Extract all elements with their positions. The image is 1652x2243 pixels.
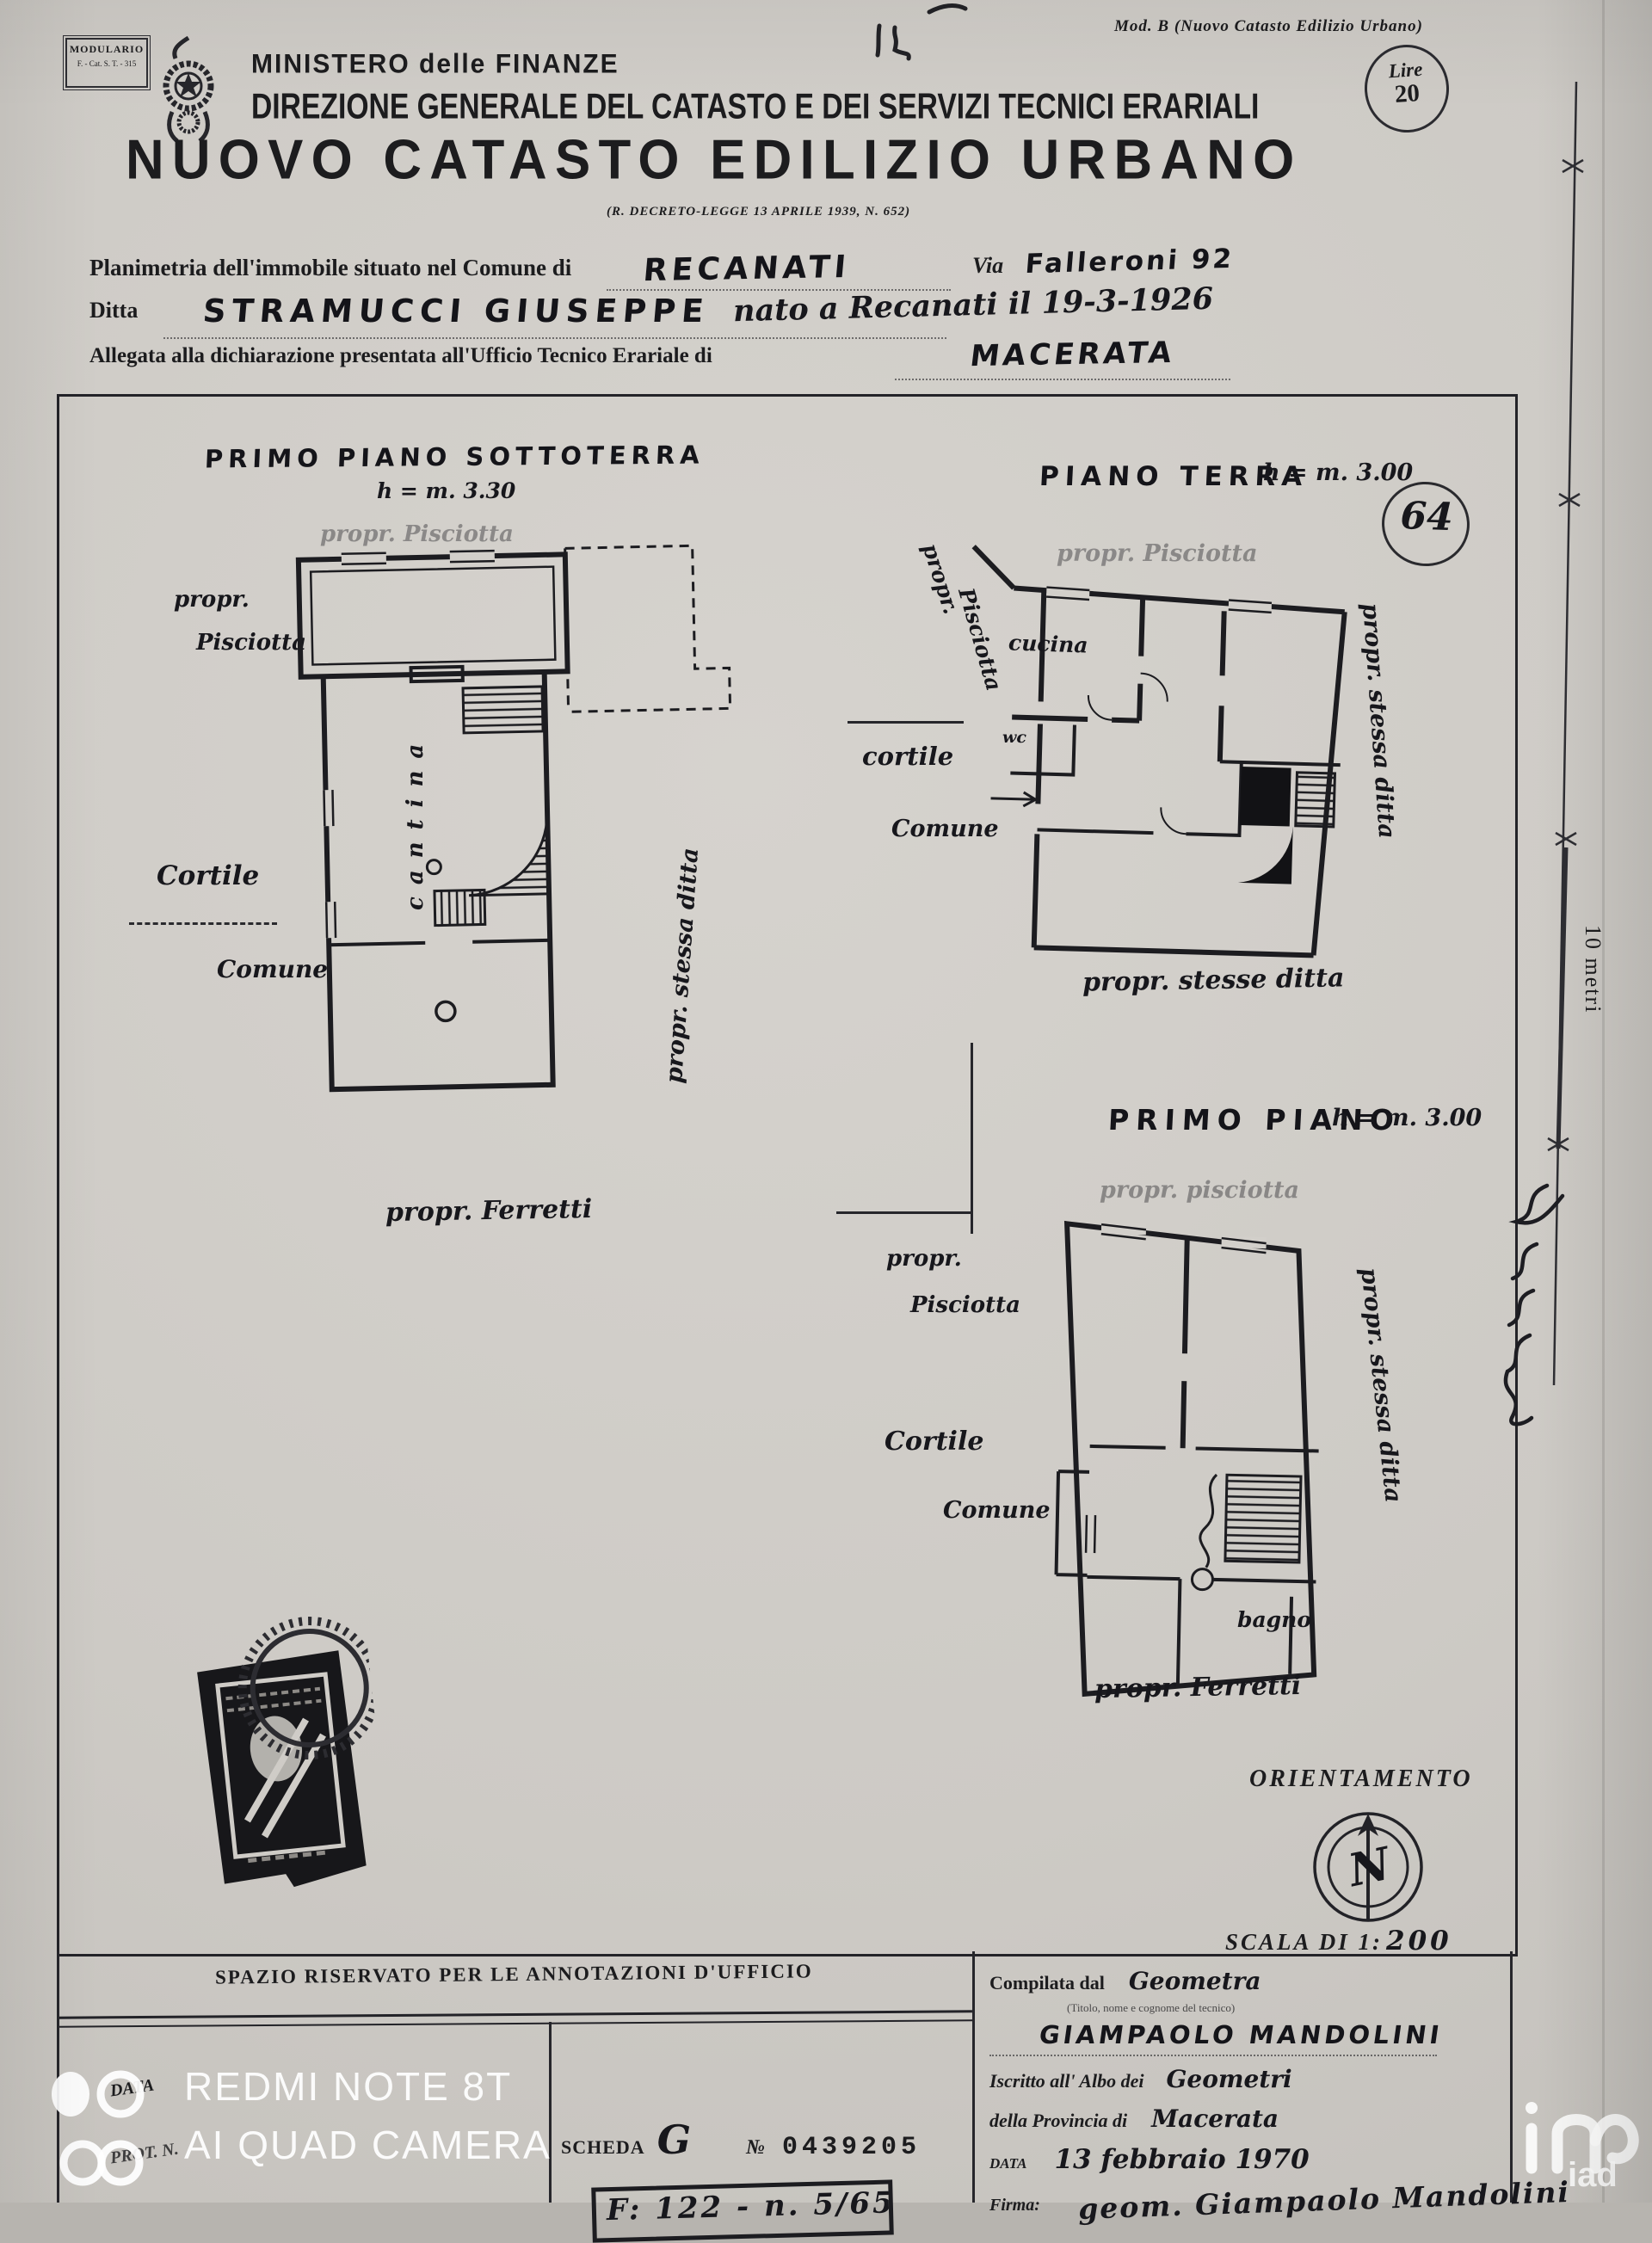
- protocol-stamp-box: F: 122 - n. 5/65: [591, 2179, 894, 2242]
- compiler-line3: Iscritto all' Albo dei Geometri: [989, 2065, 1292, 2093]
- compiler-line1-value: Geometra: [1129, 1967, 1261, 1995]
- compiler-line4: della Provincia di Macerata: [989, 2104, 1279, 2133]
- modulario-box: MODULARIO F. - Cat. S. T. - 315: [65, 38, 148, 88]
- compiler-line4-label: della Provincia di: [989, 2110, 1127, 2131]
- form-via-value: Falleroni 92: [1024, 243, 1235, 280]
- camera-watermark-line2: AI QUAD CAMERA: [184, 2122, 552, 2168]
- compiler-subtitle: (Titolo, nome e cognome del tecnico): [1067, 2001, 1235, 2015]
- office-right-border: [1510, 1951, 1513, 2203]
- basement-height: h = m. 3.30: [377, 478, 515, 503]
- basement-room-label: cantina: [403, 732, 428, 910]
- scheda-number-sign: №: [746, 2136, 765, 2159]
- form-line2-value: STRAMUCCI GIUSEPPE: [201, 293, 711, 330]
- compiler-line4-value: Macerata: [1151, 2104, 1279, 2133]
- first-left-label1: propr.: [886, 1246, 962, 1272]
- ground-height: h = m. 3.00: [1263, 459, 1413, 486]
- compiler-firma: Firma: geom. Giampaolo Mandolini: [989, 2184, 1570, 2217]
- compiler-date-label: DATA: [989, 2155, 1026, 2172]
- office-inner-divider: [549, 2022, 552, 2203]
- ground-boundary-line: [848, 721, 964, 724]
- form-via-label: Via: [972, 253, 1003, 279]
- scale-label: SCALA DI 1:: [1225, 1929, 1383, 1955]
- form-line3-label: Allegata alla dichiarazione presentata a…: [89, 344, 712, 368]
- ground-kitchen-label: cucina: [1008, 630, 1088, 657]
- mod-b-label: Mod. B (Nuovo Catasto Edilizio Urbano): [1114, 17, 1423, 36]
- modulario-sub: F. - Cat. S. T. - 315: [67, 59, 146, 68]
- compiler-line1-label: Compilata dal: [989, 1972, 1105, 1993]
- compiler-name: GIAMPAOLO MANDOLINI: [1038, 2020, 1445, 2049]
- form-line1-label: Planimetria dell'immobile situato nel Co…: [89, 255, 571, 281]
- orientation-title: ORIENTAMENTO: [1249, 1765, 1473, 1793]
- scale-value: 200: [1386, 1926, 1452, 1956]
- form-line1-value: RECANATI: [642, 250, 852, 288]
- decree-line: (R. DECRETO-LEGGE 13 APRILE 1939, N. 652…: [607, 205, 910, 219]
- lire-value: 20: [1366, 77, 1447, 111]
- form-line3-value: MACERATA: [968, 336, 1177, 373]
- first-boundary-vline: [971, 1043, 973, 1234]
- compiler-line3-label: Iscritto all' Albo dei: [989, 2070, 1143, 2092]
- scheda-label: SCHEDA: [561, 2136, 645, 2158]
- compiler-line3-value: Geometri: [1166, 2065, 1291, 2093]
- protocol-stamp-text: F: 122 - n. 5/65: [595, 2184, 889, 2230]
- compiler-name-underline: [989, 2055, 1437, 2056]
- scale-line: SCALA DI 1: 200: [1225, 1926, 1452, 1956]
- basement-title: PRIMO PIANO SOTTOTERRA: [204, 440, 705, 473]
- direction-title: DIREZIONE GENERALE DEL CATASTO E DEI SER…: [251, 86, 1259, 127]
- first-height: h = m. 3.00: [1332, 1105, 1482, 1131]
- form-line2-underline: [163, 337, 946, 339]
- ground-wc-label: wc: [1002, 728, 1026, 747]
- ministry-title: MINISTERO delle FINANZE: [251, 49, 619, 80]
- office-col-divider: [972, 1951, 975, 2203]
- ground-court-label1: cortile: [862, 742, 953, 771]
- scheda-number-value: 0439205: [782, 2133, 921, 2162]
- compiler-line1: Compilata dal Geometra: [989, 1967, 1261, 1995]
- modulario-title: MODULARIO: [67, 43, 146, 56]
- scheda-row: SCHEDA G № 0439205: [561, 2117, 921, 2163]
- page-title: NUOVO CATASTO EDILIZIO URBANO: [126, 127, 1303, 192]
- basement-dashed-boundary: [129, 922, 277, 925]
- compiler-firma-label: Firma:: [989, 2196, 1040, 2215]
- form-line3-underline: [895, 379, 1230, 380]
- paper-fold-line: [1602, 0, 1605, 2203]
- first-left-label2: Pisciotta: [910, 1292, 1020, 1318]
- ground-plan-drawing: [950, 539, 1410, 1033]
- first-boundary-hline: [836, 1211, 972, 1214]
- ground-badge-value: 64: [1384, 493, 1469, 539]
- basement-left-label1: propr.: [174, 587, 250, 613]
- handwritten-margin-note-icon: [1487, 1170, 1573, 1445]
- pen-scribble-icon: [869, 2, 981, 62]
- form-line2-label: Ditta: [89, 298, 138, 324]
- agency-watermark-text: iad: [1568, 2156, 1618, 2195]
- basement-bottom-label: propr. Ferretti: [385, 1194, 593, 1228]
- first-bath-label: bagno: [1237, 1607, 1311, 1632]
- compiler-date-value: 13 febbraio 1970: [1054, 2144, 1309, 2175]
- camera-watermark-logo-icon: [41, 2058, 179, 2204]
- first-court-label1: Cortile: [885, 1427, 983, 1457]
- basement-court-label1: Cortile: [157, 860, 259, 891]
- compiler-date: DATA 13 febbraio 1970: [989, 2144, 1310, 2175]
- scheda-value: G: [657, 2117, 691, 2163]
- revenue-stamp-icon: [167, 1610, 396, 1938]
- camera-watermark-line1: REDMI NOTE 8T: [184, 2063, 512, 2110]
- first-bottom-label: propr. Ferretti: [1094, 1671, 1302, 1704]
- ground-bottom-label: propr. stesse ditta: [1082, 963, 1345, 997]
